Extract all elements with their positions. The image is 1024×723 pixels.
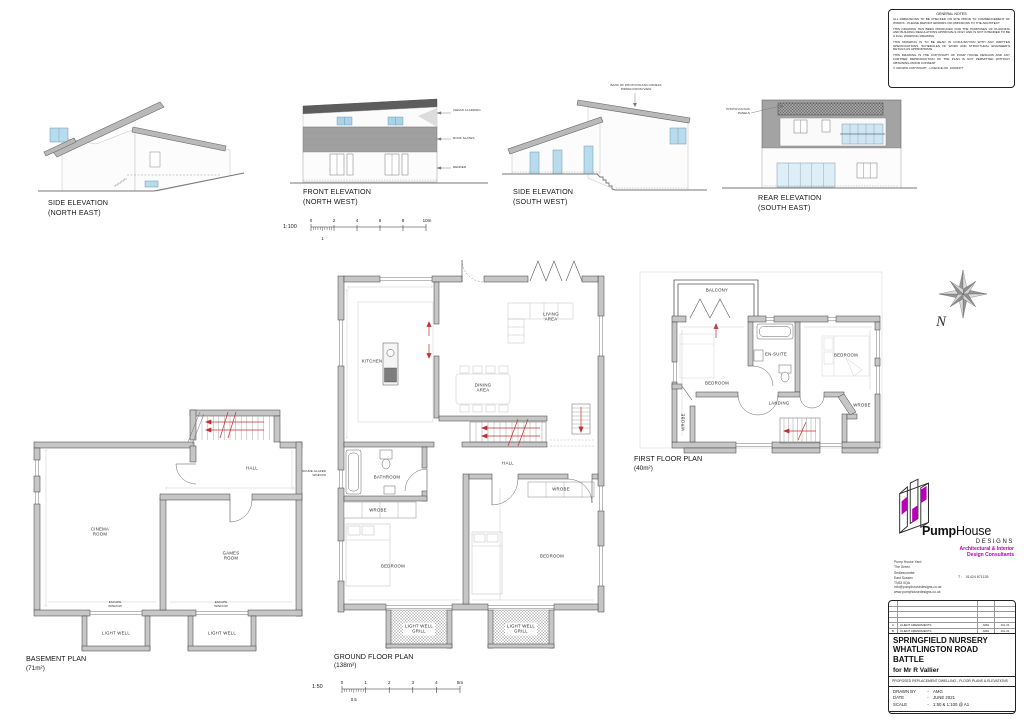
- annotation-escape-window-right: ESCAPE WINDOW: [208, 601, 234, 608]
- general-note-copyright: © CROWN COPYRIGHT - LICENCE NO. 10003377: [893, 67, 1010, 71]
- side-elevation-north-east-drawing: [36, 96, 246, 198]
- room-label-bedroom-right: BEDROOM: [532, 553, 572, 558]
- svg-text:0.5: 0.5: [351, 697, 357, 702]
- general-note: ALL DIMENSIONS TO BE CHECKED ON SITE PRI…: [893, 18, 1010, 25]
- general-notes-box: GENERAL NOTES ALL DIMENSIONS TO BE CHECK…: [888, 9, 1015, 88]
- room-label-ensuite: EN-SUITE: [759, 351, 793, 356]
- basement-plan-title: BASEMENT PLAN: [26, 654, 86, 663]
- brand-designs: DESIGNS: [924, 539, 1014, 545]
- drawing-subtitle: PROPOSED REPLACEMENT DWELLING - FLOOR PL…: [889, 677, 1015, 687]
- basement-plan-drawing: [24, 402, 314, 672]
- general-note: THIS DRAWING IS THE COPYRIGHT OF PUMP HO…: [893, 54, 1010, 65]
- revision-table: A CLIENT AMENDMENTS AMG JUL 21 B CLIENT …: [889, 601, 1015, 634]
- ground-floor-plan-drawing: [332, 256, 622, 676]
- annotation-cedar-cladding: CEDAR CLADDING: [453, 109, 487, 113]
- room-label-kitchen: KITCHEN: [355, 358, 389, 363]
- room-label-living-area: LIVING AREA: [538, 312, 564, 323]
- svg-text:2: 2: [388, 680, 391, 685]
- svg-text:8: 8: [402, 218, 405, 223]
- label-light-well-grill-left: LIGHT WELL GRILL: [403, 623, 435, 636]
- rear-elevation-south-east: PHOTOVOLTAIC PANELS: [722, 84, 917, 196]
- first-floor-plan: BALCONY BEDROOM EN-SUITE BEDROOM LANDING…: [632, 266, 888, 481]
- first-floor-plan-drawing: [632, 266, 888, 481]
- svg-text:1: 1: [364, 680, 367, 685]
- room-label-wrobe-right: WROBE: [541, 486, 581, 491]
- elevation-title-front-nw: FRONT ELEVATION (NORTH WEST): [303, 187, 371, 206]
- svg-text:3: 3: [412, 680, 415, 685]
- scale-bar-graphic: 0 2 4 6 8 10m 1: [299, 214, 449, 244]
- meta-scale: SCALE-1:50 & 1:100 @ A1: [893, 702, 1011, 709]
- room-label-wrobe-left: WROBE: [680, 402, 685, 442]
- scale-bar-1-50: 0 1 2 3 4 5m 0.5: [332, 676, 482, 704]
- compass-north-arrow: N: [928, 262, 1000, 334]
- drawing-sheet: GENERAL NOTES ALL DIMENSIONS TO BE CHECK…: [0, 0, 1024, 723]
- brand-website: www.pumphousedesigns.co.uk: [894, 590, 941, 594]
- scale-ratio-label: 1:100: [283, 224, 297, 230]
- brand-address: Pump House Yard The Green Sedlescombe Ea…: [894, 560, 921, 586]
- room-label-bedroom-left: BEDROOM: [373, 563, 413, 568]
- meta-date: DATE-JUNE 2021: [893, 695, 1011, 702]
- scale-bar-1-100: 1:100 0 2 4 6 8 10m 1: [283, 214, 453, 244]
- project-line: BATTLE: [893, 655, 1011, 664]
- elevation-title-side-sw: SIDE ELEVATION (SOUTH WEST): [513, 187, 573, 206]
- annotation-escape-window-left: ESCAPE WINDOW: [102, 601, 128, 608]
- brand-name-pump: Pump: [922, 524, 956, 538]
- svg-text:0: 0: [341, 680, 344, 685]
- ground-plan-title: GROUND FLOOR PLAN: [334, 652, 413, 661]
- room-label-hall: HALL: [488, 460, 528, 465]
- general-note: THIS DRAWING IS TO BE READ IN CONJUNCTIO…: [893, 41, 1010, 52]
- room-label-cinema-room: CINEMA ROOM: [86, 527, 114, 538]
- brand-phone: T : 01424 871135: [958, 575, 988, 579]
- project-client: for Mr R Vallier: [893, 667, 1011, 674]
- room-label-hall: HALL: [232, 465, 272, 470]
- meta-section: DRAWN BY-AMG DATE-JUNE 2021 SCALE-1:50 &…: [889, 687, 1015, 712]
- annotation-render: RENDER: [453, 166, 487, 170]
- general-notes-title: GENERAL NOTES: [893, 12, 1010, 16]
- project-line: WHATLINGTON ROAD: [893, 645, 1011, 654]
- project-line: SPRINGFIELD NURSERY: [893, 636, 1011, 645]
- side-elevation-sw-drawing: [500, 84, 710, 202]
- ground-plan-area: (138m²): [334, 662, 356, 669]
- ground-floor-plan: KITCHEN LIVING AREA DINING AREA BATHROOM…: [332, 256, 622, 706]
- first-plan-area: (40m²): [634, 465, 653, 472]
- revision-row: A CLIENT AMENDMENTS AMG JUL 21: [889, 622, 1015, 628]
- first-plan-title: FIRST FLOOR PLAN: [634, 454, 702, 463]
- room-label-dining-area: DINING AREA: [470, 383, 496, 394]
- svg-text:0: 0: [310, 218, 313, 223]
- revision-row: B CLIENT AMENDMENTS AMG JUL 21: [889, 628, 1015, 634]
- brand-name-house: House: [956, 524, 991, 538]
- label-light-well-left: LIGHT WELL: [96, 630, 136, 635]
- room-label-bedroom-right: BEDROOM: [826, 352, 866, 357]
- room-label-bathroom: BATHROOM: [367, 474, 407, 479]
- meta-drawn-by: DRAWN BY-AMG: [893, 689, 1011, 696]
- svg-text:6: 6: [379, 218, 382, 223]
- project-section: SPRINGFIELD NURSERY WHATLINGTON ROAD BAT…: [889, 634, 1015, 677]
- compass-n-label: N: [935, 314, 947, 330]
- front-elevation-north-west: CEDAR CLADDING ROOF SLATES RENDER: [288, 98, 493, 193]
- room-label-bedroom-left: BEDROOM: [697, 380, 737, 385]
- svg-text:1: 1: [321, 236, 324, 241]
- label-light-well-grill-right: LIGHT WELL GRILL: [505, 623, 537, 636]
- elevation-title-rear-se: REAR ELEVATION (SOUTH EAST): [758, 193, 821, 212]
- svg-text:4: 4: [356, 218, 359, 223]
- svg-text:10m: 10m: [423, 218, 432, 223]
- elevation-title-side-ne: SIDE ELEVATION (NORTH EAST): [48, 198, 108, 217]
- brand-tagline-2: Design Consultants: [924, 552, 1014, 558]
- svg-text:2: 2: [333, 218, 336, 223]
- brand-email: info@pumphousedesigns.co.uk: [894, 585, 941, 589]
- room-label-balcony: BALCONY: [697, 287, 737, 292]
- drawing-number-row: DRAWING No.6940 / 1 / B: [889, 712, 1015, 714]
- svg-text:5m: 5m: [457, 680, 464, 685]
- room-label-games-room: GAMES ROOM: [217, 551, 245, 562]
- title-block: A CLIENT AMENDMENTS AMG JUL 21 B CLIENT …: [888, 600, 1016, 714]
- brand-name: PumpHouse: [922, 524, 991, 538]
- room-label-wrobe-right: WROBE: [842, 402, 882, 407]
- scale-ratio-label-50: 1:50: [312, 684, 323, 690]
- annotation-roof-slates: ROOF SLATES: [453, 137, 487, 141]
- basement-plan-area: (71m²): [26, 665, 45, 672]
- room-label-landing: LANDING: [759, 400, 799, 405]
- general-note: THIS DRAWING HAS BEEN PRODUCED FOR THE P…: [893, 28, 1010, 39]
- side-elevation-south-west: BANK OF PHOTOVOLTAIC PANELS HIDDEN FROM …: [500, 84, 710, 202]
- label-light-well-right: LIGHT WELL: [202, 630, 242, 635]
- room-label-wrobe-left: WROBE: [358, 507, 398, 512]
- svg-text:4: 4: [435, 680, 438, 685]
- rear-elevation-drawing: [722, 84, 917, 196]
- basement-plan: HALL CINEMA ROOM GAMES ROOM LIGHT WELL L…: [24, 402, 314, 682]
- pumphouse-branding-block: PumpHouse DESIGNS Architectural & Interi…: [888, 478, 1018, 600]
